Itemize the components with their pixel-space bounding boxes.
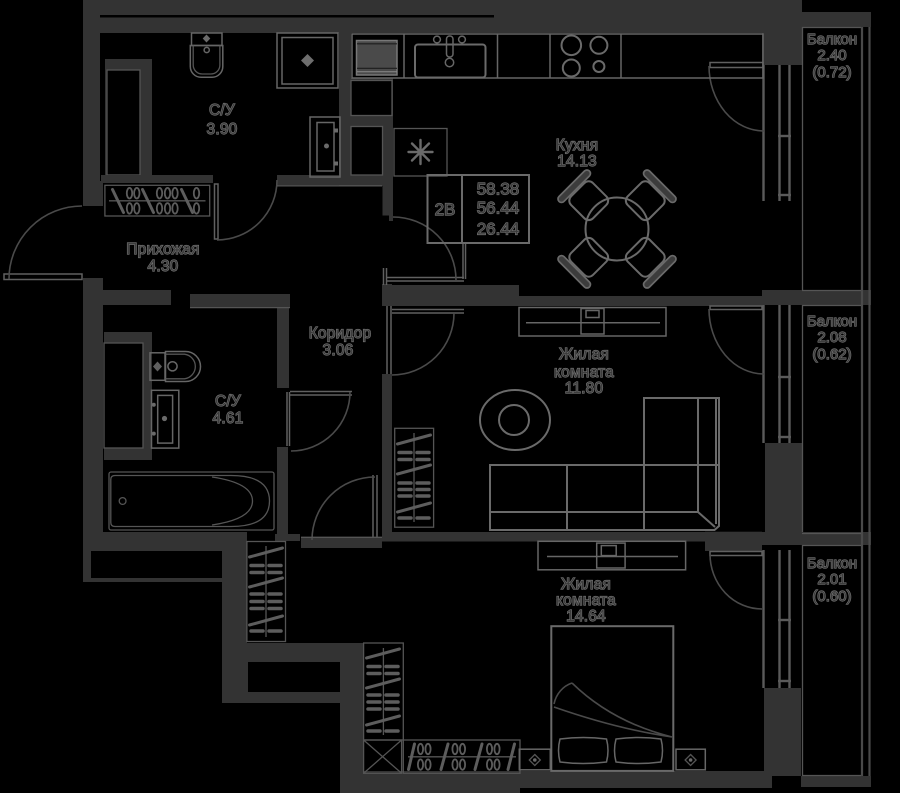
svg-text:С/У: С/У xyxy=(215,393,241,410)
svg-text:11.80: 11.80 xyxy=(565,380,604,397)
svg-text:Жилая: Жилая xyxy=(559,346,609,363)
svg-text:4.61: 4.61 xyxy=(213,410,244,427)
svg-text:Коридор: Коридор xyxy=(309,325,372,342)
svg-text:комната: комната xyxy=(556,592,616,609)
svg-text:Кухня: Кухня xyxy=(556,137,598,154)
svg-text:2.40: 2.40 xyxy=(817,47,846,64)
svg-text:58.38: 58.38 xyxy=(477,180,520,199)
svg-text:14.64: 14.64 xyxy=(566,608,606,625)
svg-text:2В: 2В xyxy=(435,200,456,219)
svg-text:26.44: 26.44 xyxy=(477,220,520,239)
svg-text:3.06: 3.06 xyxy=(323,342,354,359)
svg-text:Балкон: Балкон xyxy=(807,31,857,48)
svg-text:С/У: С/У xyxy=(209,102,235,119)
svg-text:Прихожая: Прихожая xyxy=(126,241,199,258)
svg-text:56.44: 56.44 xyxy=(477,199,520,218)
svg-text:(0.72): (0.72) xyxy=(812,64,851,81)
svg-text:4.30: 4.30 xyxy=(148,258,179,275)
svg-text:2.08: 2.08 xyxy=(817,329,846,346)
svg-text:3.90: 3.90 xyxy=(207,121,238,138)
svg-text:(0.60): (0.60) xyxy=(812,588,851,605)
svg-text:комната: комната xyxy=(554,364,614,381)
svg-text:Балкон: Балкон xyxy=(807,313,857,330)
svg-text:14.13: 14.13 xyxy=(557,153,597,170)
svg-text:2.01: 2.01 xyxy=(817,571,846,588)
svg-text:Жилая: Жилая xyxy=(561,576,611,593)
svg-text:Балкон: Балкон xyxy=(807,555,857,572)
svg-text:(0.62): (0.62) xyxy=(812,346,851,363)
